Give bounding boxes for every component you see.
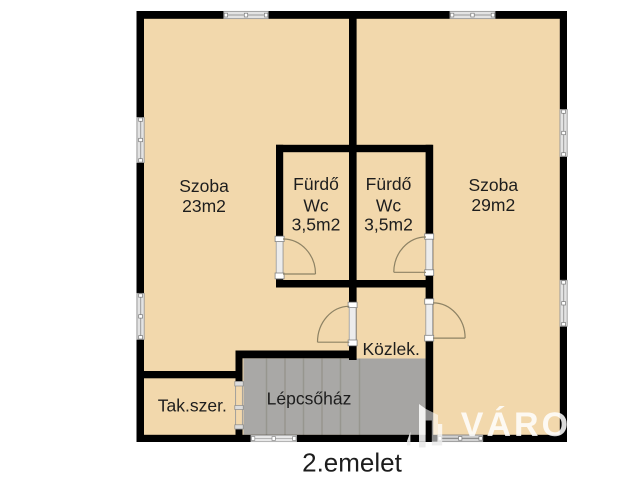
svg-text:2.emelet: 2.emelet (302, 448, 402, 478)
svg-text:Közlek.: Közlek. (363, 339, 420, 359)
svg-text:23m2: 23m2 (182, 196, 226, 216)
svg-text:3,5m2: 3,5m2 (292, 215, 341, 235)
svg-text:VÁRO: VÁRO (461, 406, 571, 444)
svg-text:3,5m2: 3,5m2 (364, 215, 413, 235)
svg-text:Wc: Wc (376, 196, 402, 216)
svg-text:Fürdő: Fürdő (293, 174, 339, 194)
svg-text:Wc: Wc (303, 196, 329, 216)
svg-text:Fürdő: Fürdő (366, 174, 412, 194)
svg-text:Szoba: Szoba (179, 176, 229, 196)
svg-text:Tak.szer.: Tak.szer. (158, 396, 227, 416)
svg-text:Lépcsőház: Lépcsőház (267, 389, 352, 409)
svg-text:29m2: 29m2 (471, 195, 515, 215)
svg-text:Szoba: Szoba (468, 175, 518, 195)
